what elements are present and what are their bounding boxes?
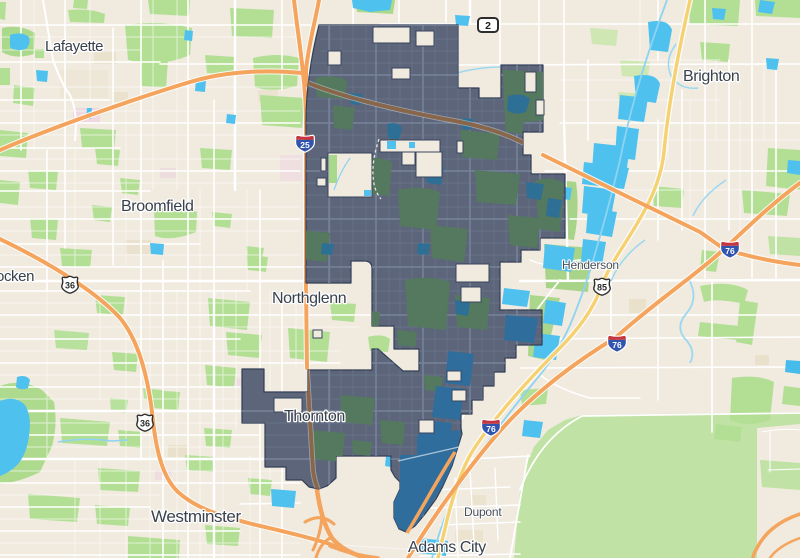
- svg-text:76: 76: [725, 246, 735, 256]
- svg-text:Adams City: Adams City: [408, 539, 486, 556]
- svg-text:85: 85: [597, 282, 607, 292]
- svg-text:Westminster: Westminster: [151, 507, 241, 526]
- svg-text:Dupont: Dupont: [464, 505, 502, 519]
- svg-text:36: 36: [140, 418, 150, 428]
- svg-text:Thornton: Thornton: [284, 408, 345, 425]
- svg-text:Lafayette: Lafayette: [45, 38, 103, 55]
- svg-text:Broomfield: Broomfield: [121, 198, 193, 215]
- svg-text:76: 76: [612, 340, 622, 350]
- svg-text:36: 36: [65, 280, 75, 290]
- svg-text:ocken: ocken: [0, 268, 34, 285]
- svg-text:76: 76: [486, 424, 496, 434]
- svg-text:Henderson: Henderson: [562, 258, 619, 272]
- svg-text:2: 2: [485, 20, 491, 32]
- svg-text:25: 25: [300, 140, 310, 150]
- svg-text:Brighton: Brighton: [683, 68, 739, 85]
- svg-text:Northglenn: Northglenn: [272, 290, 346, 307]
